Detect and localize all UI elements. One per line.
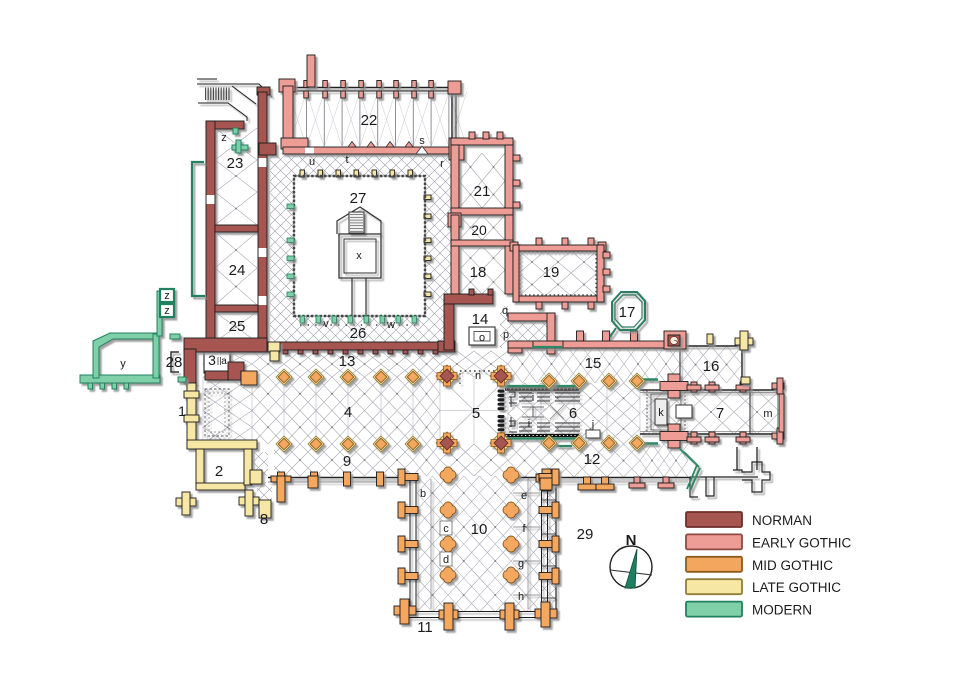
svg-text:10: 10 — [471, 521, 488, 538]
svg-text:5: 5 — [472, 405, 480, 422]
svg-text:v: v — [323, 318, 329, 330]
svg-text:N: N — [626, 532, 637, 549]
svg-text:a: a — [221, 356, 227, 367]
svg-text:s: s — [419, 135, 425, 147]
svg-text:d: d — [443, 554, 449, 566]
svg-text:u: u — [309, 156, 315, 168]
svg-text:8: 8 — [260, 511, 268, 528]
svg-text:z: z — [221, 132, 227, 144]
svg-text:4: 4 — [344, 404, 352, 421]
svg-text:x: x — [356, 250, 362, 262]
svg-text:n: n — [475, 370, 481, 382]
svg-text:r: r — [440, 158, 444, 170]
svg-text:o: o — [479, 332, 485, 344]
svg-text:22: 22 — [361, 112, 378, 129]
svg-text:z: z — [164, 290, 170, 302]
svg-text:13: 13 — [339, 353, 356, 370]
svg-text:24: 24 — [229, 262, 246, 279]
svg-text:12: 12 — [584, 451, 601, 468]
svg-text:g: g — [518, 558, 524, 570]
svg-text:b: b — [420, 488, 426, 500]
svg-text:y: y — [120, 358, 126, 370]
svg-text:23: 23 — [227, 155, 244, 172]
svg-text:j: j — [591, 419, 594, 431]
svg-text:15: 15 — [585, 355, 602, 372]
svg-text:3: 3 — [208, 352, 216, 368]
svg-text:e: e — [521, 490, 527, 502]
svg-text:26: 26 — [350, 325, 367, 342]
svg-text:m: m — [763, 408, 772, 420]
svg-text:p: p — [503, 329, 509, 341]
svg-text:LATE GOTHIC: LATE GOTHIC — [752, 580, 841, 595]
svg-text:28: 28 — [166, 354, 183, 371]
svg-text:h: h — [518, 591, 524, 603]
svg-text:16: 16 — [703, 358, 720, 375]
svg-text:17: 17 — [619, 304, 636, 321]
svg-text:25: 25 — [229, 318, 246, 335]
svg-text:7: 7 — [716, 405, 724, 422]
svg-text:18: 18 — [470, 264, 487, 281]
svg-text:z: z — [164, 305, 170, 317]
svg-text:11: 11 — [417, 619, 433, 636]
svg-text:k: k — [658, 407, 664, 419]
svg-text:9: 9 — [343, 453, 351, 470]
svg-text:1: 1 — [178, 403, 186, 419]
svg-text:MODERN: MODERN — [752, 603, 812, 618]
svg-text:27: 27 — [350, 190, 367, 207]
svg-text:14: 14 — [472, 311, 489, 328]
svg-text:21: 21 — [474, 183, 491, 200]
svg-text:i: i — [528, 418, 530, 430]
svg-text:6: 6 — [569, 405, 577, 422]
svg-text:c: c — [443, 523, 449, 535]
svg-text:w: w — [386, 319, 395, 331]
svg-text:20: 20 — [471, 222, 487, 238]
svg-text:NORMAN: NORMAN — [752, 513, 812, 528]
svg-text:EARLY GOTHIC: EARLY GOTHIC — [752, 535, 852, 550]
svg-text:2: 2 — [215, 463, 223, 480]
svg-text:t: t — [345, 154, 348, 166]
svg-text:q: q — [502, 305, 508, 317]
svg-text:i: i — [532, 392, 534, 404]
svg-text:19: 19 — [543, 264, 560, 281]
svg-text:MID GOTHIC: MID GOTHIC — [752, 558, 833, 573]
svg-text:29: 29 — [577, 526, 594, 543]
